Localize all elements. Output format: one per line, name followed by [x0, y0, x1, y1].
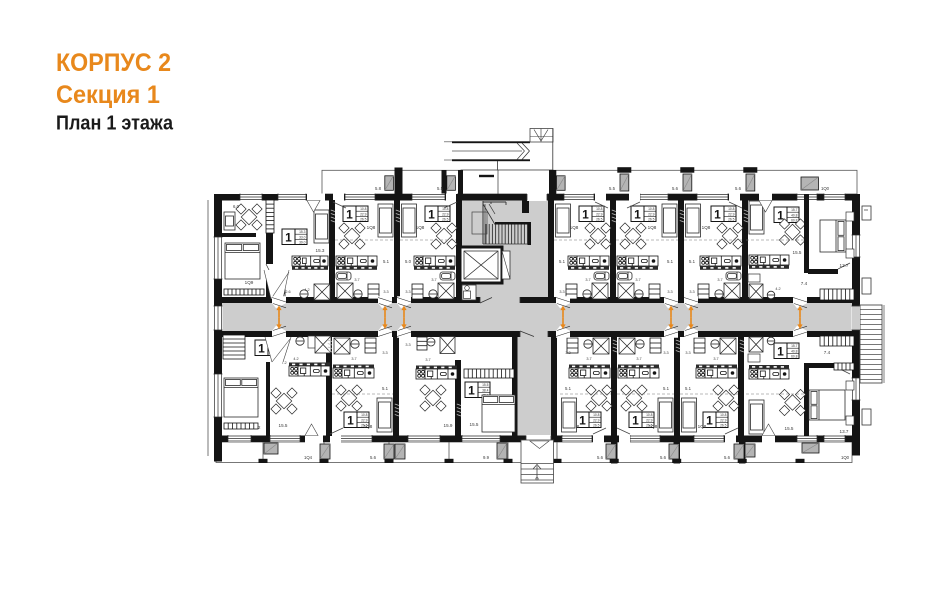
svg-text:1: 1: [285, 230, 292, 244]
svg-text:60.8: 60.8: [791, 219, 798, 223]
svg-text:3.7: 3.7: [431, 278, 436, 282]
svg-text:3.7: 3.7: [717, 278, 722, 282]
svg-text:5.1: 5.1: [685, 386, 692, 391]
svg-text:22.9: 22.9: [361, 418, 368, 422]
svg-text:38.4: 38.4: [482, 388, 489, 392]
svg-text:15.9: 15.9: [444, 423, 453, 428]
svg-text:5.6: 5.6: [724, 455, 731, 460]
svg-text:5.6: 5.6: [597, 455, 604, 460]
svg-text:1: 1: [582, 207, 589, 221]
svg-text:15.5: 15.5: [470, 422, 479, 427]
svg-text:10.8: 10.8: [596, 207, 603, 211]
svg-text:26.5: 26.5: [720, 424, 727, 428]
svg-text:22.9: 22.9: [593, 418, 600, 422]
svg-text:15.7: 15.7: [791, 344, 798, 348]
svg-text:1Q0: 1Q0: [821, 186, 830, 191]
svg-text:1Q8: 1Q8: [416, 225, 425, 230]
svg-text:22.9: 22.9: [360, 212, 367, 216]
svg-text:15.5: 15.5: [279, 423, 288, 428]
svg-text:5.0: 5.0: [405, 259, 412, 264]
svg-text:3.3: 3.3: [685, 351, 690, 355]
svg-text:5.1: 5.1: [663, 386, 670, 391]
svg-text:9.9: 9.9: [483, 455, 490, 460]
svg-text:10.8: 10.8: [593, 413, 600, 417]
svg-text:7.4: 7.4: [824, 350, 831, 355]
svg-text:1Q8: 1Q8: [367, 225, 376, 230]
svg-text:1: 1: [346, 207, 353, 221]
svg-text:1Q8: 1Q8: [698, 424, 707, 429]
svg-text:13.7: 13.7: [840, 429, 849, 434]
svg-text:1Q8: 1Q8: [364, 424, 373, 429]
svg-text:3.7: 3.7: [635, 278, 640, 282]
svg-text:40.8: 40.8: [791, 213, 798, 217]
svg-text:3.7: 3.7: [354, 278, 359, 282]
svg-text:3.3: 3.3: [663, 351, 668, 355]
svg-text:10.8: 10.8: [360, 207, 367, 211]
svg-text:10.8: 10.8: [720, 413, 727, 417]
svg-text:3.3: 3.3: [382, 351, 387, 355]
svg-text:КОРПУС 2: КОРПУС 2: [56, 49, 171, 77]
svg-text:1Q8: 1Q8: [570, 225, 579, 230]
svg-text:1: 1: [632, 413, 639, 427]
svg-text:5.5: 5.5: [437, 186, 444, 191]
svg-text:1: 1: [258, 341, 265, 355]
svg-text:60.8: 60.8: [791, 355, 798, 359]
svg-text:26.5: 26.5: [442, 218, 449, 222]
svg-text:3.3: 3.3: [689, 290, 694, 294]
svg-text:5.1: 5.1: [565, 386, 572, 391]
svg-text:1: 1: [579, 413, 586, 427]
svg-text:15.5: 15.5: [482, 383, 489, 387]
svg-text:1Q8: 1Q8: [648, 225, 657, 230]
svg-text:10.8: 10.8: [648, 207, 655, 211]
svg-text:6.0: 6.0: [233, 204, 240, 209]
svg-text:10.8: 10.8: [361, 413, 368, 417]
svg-text:3.7: 3.7: [585, 278, 590, 282]
svg-text:15.5: 15.5: [785, 426, 794, 431]
svg-text:5.1: 5.1: [689, 259, 696, 264]
svg-text:26.5: 26.5: [360, 218, 367, 222]
svg-text:4.2: 4.2: [293, 357, 298, 361]
svg-text:1: 1: [777, 344, 784, 358]
svg-text:План 1 этажа: План 1 этажа: [56, 112, 174, 135]
svg-text:3.7: 3.7: [713, 357, 718, 361]
svg-text:5.6: 5.6: [735, 186, 742, 191]
svg-text:10.8: 10.8: [728, 207, 735, 211]
svg-text:3.7: 3.7: [586, 357, 591, 361]
svg-text:1Q4: 1Q4: [304, 455, 313, 460]
svg-text:4.2: 4.2: [304, 288, 309, 292]
svg-text:3.3: 3.3: [405, 290, 410, 294]
svg-text:22.9: 22.9: [648, 212, 655, 216]
svg-text:33.0: 33.0: [299, 235, 306, 239]
svg-text:3.3: 3.3: [559, 290, 564, 294]
svg-text:3.7: 3.7: [351, 357, 356, 361]
svg-text:1Q0: 1Q0: [841, 455, 850, 460]
svg-text:15.3: 15.3: [316, 248, 325, 253]
svg-text:3.3: 3.3: [405, 343, 410, 347]
svg-text:1Q9: 1Q9: [245, 280, 254, 285]
svg-text:5.1: 5.1: [382, 386, 389, 391]
svg-text:2.6: 2.6: [285, 290, 290, 294]
svg-text:5.6: 5.6: [370, 455, 377, 460]
svg-text:1: 1: [428, 207, 435, 221]
svg-text:5.1: 5.1: [667, 259, 674, 264]
svg-text:15.5: 15.5: [793, 250, 802, 255]
svg-text:3.3: 3.3: [565, 351, 570, 355]
svg-text:39.0: 39.0: [299, 241, 306, 245]
svg-text:1: 1: [347, 413, 354, 427]
svg-text:1Q8: 1Q8: [702, 225, 711, 230]
svg-text:3.7: 3.7: [636, 357, 641, 361]
svg-text:3.3: 3.3: [383, 290, 388, 294]
svg-text:Секция 1: Секция 1: [56, 81, 160, 109]
svg-text:10.8: 10.8: [442, 207, 449, 211]
svg-text:22.9: 22.9: [646, 418, 653, 422]
svg-text:15.7: 15.7: [791, 208, 798, 212]
svg-text:1Q8: 1Q8: [649, 424, 658, 429]
svg-text:3.7: 3.7: [425, 358, 430, 362]
svg-text:3.3: 3.3: [667, 290, 672, 294]
svg-text:5.8: 5.8: [375, 186, 382, 191]
svg-text:40.8: 40.8: [791, 349, 798, 353]
svg-text:13.7: 13.7: [840, 263, 849, 268]
svg-text:1: 1: [714, 207, 721, 221]
svg-text:26.5: 26.5: [648, 218, 655, 222]
svg-text:10.8: 10.8: [646, 413, 653, 417]
svg-text:1: 1: [468, 383, 475, 397]
svg-text:5.1: 5.1: [383, 259, 390, 264]
svg-text:5.6: 5.6: [672, 186, 679, 191]
svg-text:15.3: 15.3: [299, 230, 306, 234]
svg-text:22.9: 22.9: [442, 212, 449, 216]
svg-text:1: 1: [706, 413, 713, 427]
svg-text:22.9: 22.9: [596, 212, 603, 216]
svg-text:22.9: 22.9: [728, 212, 735, 216]
svg-text:26.5: 26.5: [593, 424, 600, 428]
svg-text:4.2: 4.2: [775, 287, 780, 291]
svg-text:26.5: 26.5: [728, 218, 735, 222]
svg-text:5.6: 5.6: [660, 455, 667, 460]
svg-text:5.1: 5.1: [559, 259, 566, 264]
svg-text:26.5: 26.5: [596, 218, 603, 222]
svg-text:22.9: 22.9: [720, 418, 727, 422]
svg-text:5.5: 5.5: [609, 186, 616, 191]
svg-text:7.4: 7.4: [801, 281, 808, 286]
svg-text:1: 1: [634, 207, 641, 221]
